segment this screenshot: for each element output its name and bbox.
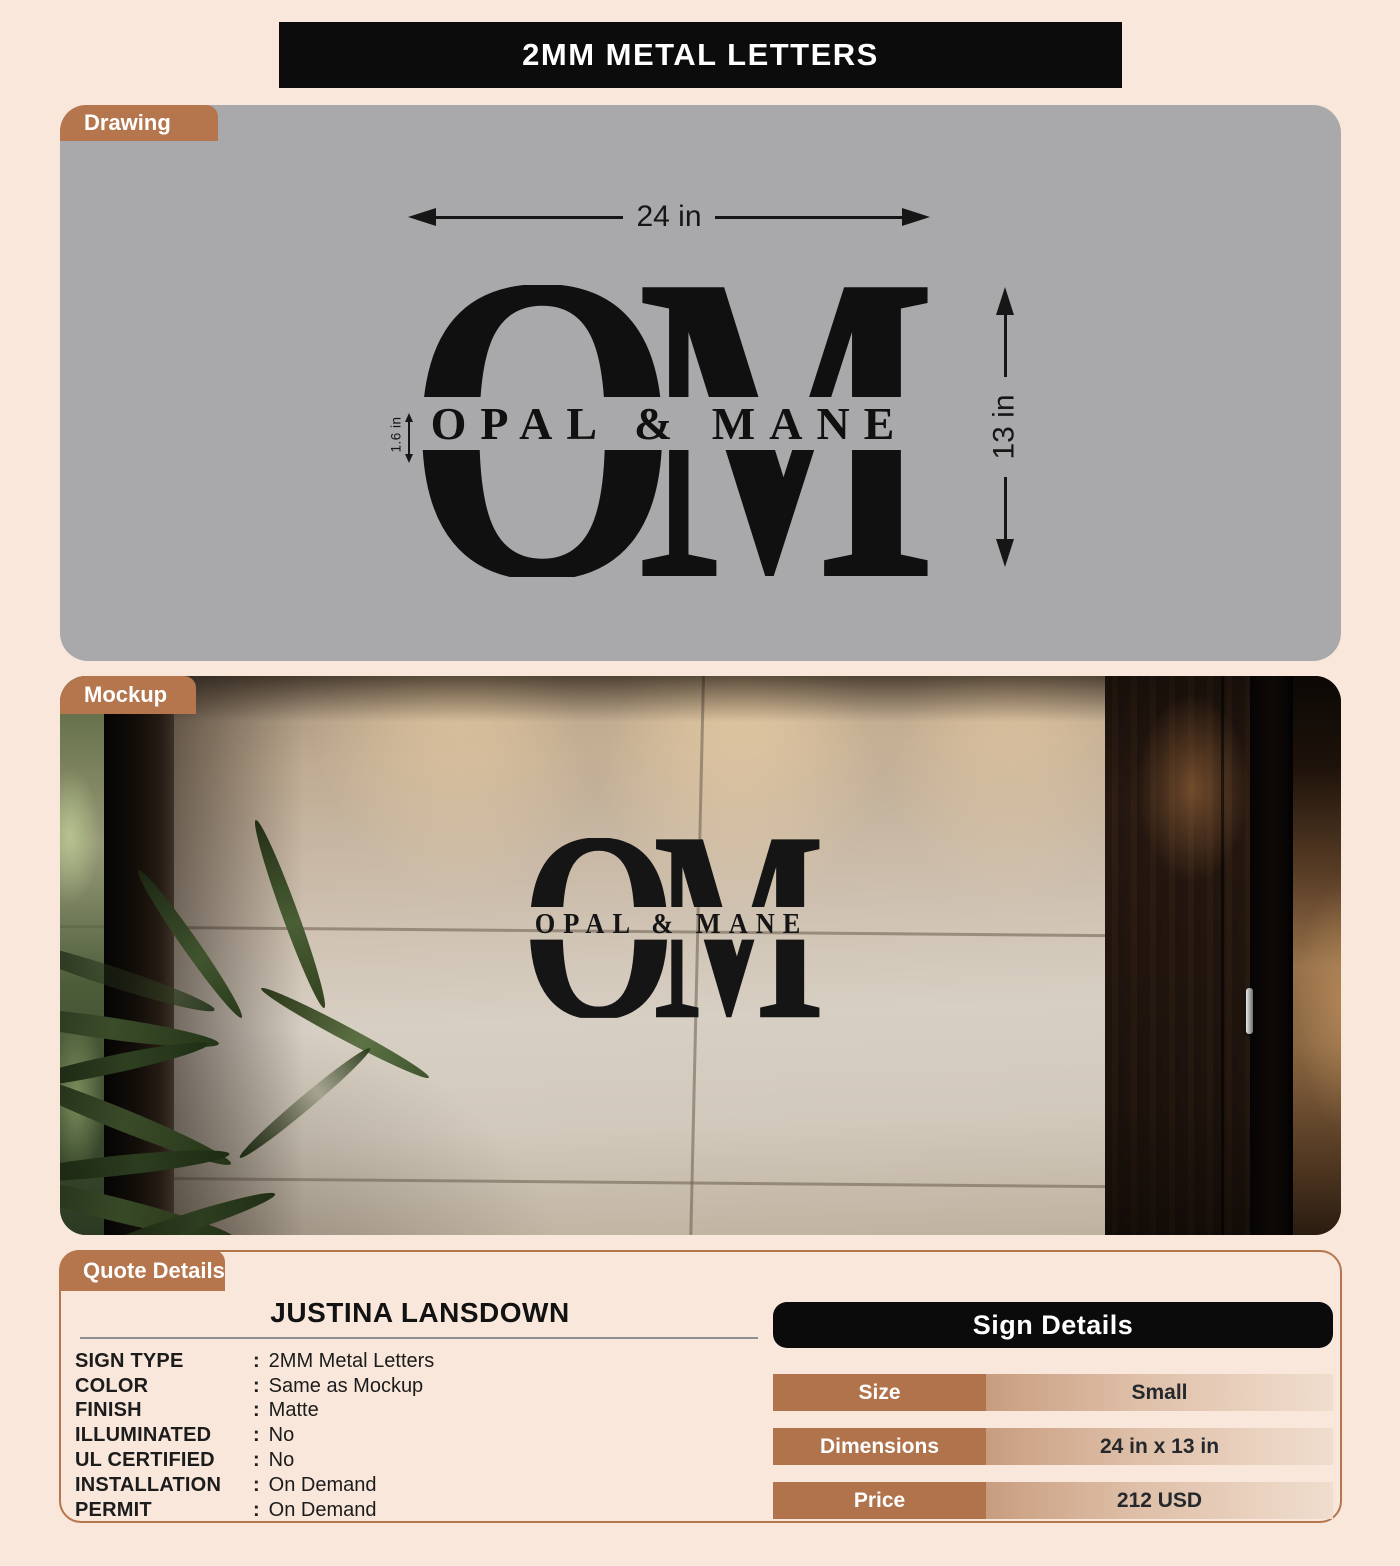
logo-mockup: O M O M OPAL & MANE bbox=[520, 838, 823, 1018]
quote-field-list: SIGN TYPE:2MM Metal Letters COLOR:Same a… bbox=[75, 1349, 434, 1523]
dimension-line bbox=[715, 216, 902, 219]
field-label: COLOR bbox=[75, 1375, 253, 1398]
field-label: FINISH bbox=[75, 1399, 253, 1422]
row-value: 24 in x 13 in bbox=[986, 1428, 1333, 1465]
row-value: Small bbox=[986, 1374, 1333, 1411]
mockup-photo: O M O M OPAL & MANE bbox=[60, 676, 1341, 1235]
table-row: Price 212 USD bbox=[773, 1482, 1333, 1519]
row-label: Dimensions bbox=[773, 1428, 986, 1465]
height-dimension-value: 13 in bbox=[988, 394, 1022, 459]
monogram-letter-m: M bbox=[653, 940, 823, 1018]
row-label: Size bbox=[773, 1374, 986, 1411]
arrow-right-icon bbox=[902, 208, 930, 226]
field-value: No bbox=[269, 1424, 295, 1447]
quote-field-row: INSTALLATION:On Demand bbox=[75, 1473, 434, 1498]
field-label: INSTALLATION bbox=[75, 1474, 253, 1497]
quote-field-row: FINISH:Matte bbox=[75, 1399, 434, 1424]
wood-door-panel bbox=[1105, 676, 1251, 1235]
door-handle bbox=[1246, 988, 1253, 1034]
width-dimension: 24 in bbox=[408, 200, 930, 234]
logo-drawing: O M O M OPAL & MANE bbox=[405, 285, 934, 577]
quote-field-row: COLOR:Same as Mockup bbox=[75, 1374, 434, 1399]
field-label: SIGN TYPE bbox=[75, 1350, 253, 1373]
drawing-panel: 24 in 13 in 1.6 in O M O M bbox=[60, 105, 1341, 661]
field-label: PERMIT bbox=[75, 1499, 253, 1522]
mockup-section-label: Mockup bbox=[60, 676, 196, 714]
row-value: 212 USD bbox=[986, 1482, 1333, 1519]
field-value: No bbox=[269, 1449, 295, 1472]
quote-field-row: PERMIT:On Demand bbox=[75, 1498, 434, 1523]
dimension-line bbox=[1004, 315, 1007, 377]
dimension-line bbox=[436, 216, 623, 219]
monogram-letter-m: M bbox=[637, 285, 934, 397]
row-label: Price bbox=[773, 1482, 986, 1519]
field-value: Same as Mockup bbox=[269, 1375, 424, 1398]
field-label: ILLUMINATED bbox=[75, 1424, 253, 1447]
arrow-left-icon bbox=[408, 208, 436, 226]
dimension-line bbox=[1004, 477, 1007, 539]
height-dimension: 13 in bbox=[985, 287, 1025, 567]
arrow-down-icon bbox=[996, 539, 1014, 567]
field-value: 2MM Metal Letters bbox=[269, 1350, 435, 1373]
arrow-up-icon bbox=[996, 287, 1014, 315]
width-dimension-value: 24 in bbox=[636, 200, 701, 234]
quote-sheet-page: { "title": "2MM METAL LETTERS", "section… bbox=[0, 0, 1400, 1566]
letter-height-value: 1.6 in bbox=[389, 416, 404, 452]
logo-wordmark: OPAL & MANE bbox=[535, 907, 809, 940]
customer-name: JUSTINA LANSDOWN bbox=[80, 1297, 760, 1329]
field-label: UL CERTIFIED bbox=[75, 1449, 253, 1472]
title-banner: 2MM METAL LETTERS bbox=[279, 22, 1122, 88]
door-frame bbox=[1250, 676, 1293, 1235]
palm-plant bbox=[60, 906, 420, 1235]
quote-field-row: UL CERTIFIED:No bbox=[75, 1448, 434, 1473]
divider bbox=[80, 1337, 758, 1339]
quote-field-row: SIGN TYPE:2MM Metal Letters bbox=[75, 1349, 434, 1374]
table-row: Size Small bbox=[773, 1374, 1333, 1411]
sign-details-header: Sign Details bbox=[773, 1302, 1333, 1348]
sign-details-table: Sign Details Size Small Dimensions 24 in… bbox=[773, 1302, 1333, 1519]
drawing-section-label: Drawing bbox=[60, 105, 218, 141]
field-value: On Demand bbox=[269, 1499, 377, 1522]
field-value: Matte bbox=[269, 1399, 319, 1422]
monogram-letter-m: M bbox=[637, 450, 934, 577]
field-value: On Demand bbox=[269, 1474, 377, 1497]
logo-wordmark: OPAL & MANE bbox=[431, 397, 909, 450]
quote-section-label: Quote Details bbox=[59, 1250, 225, 1291]
table-row: Dimensions 24 in x 13 in bbox=[773, 1428, 1333, 1465]
page-title: 2MM METAL LETTERS bbox=[522, 37, 879, 73]
right-wall-glow bbox=[1293, 676, 1341, 1235]
monogram-letter-m: M bbox=[653, 838, 823, 907]
quote-field-row: ILLUMINATED:No bbox=[75, 1423, 434, 1448]
